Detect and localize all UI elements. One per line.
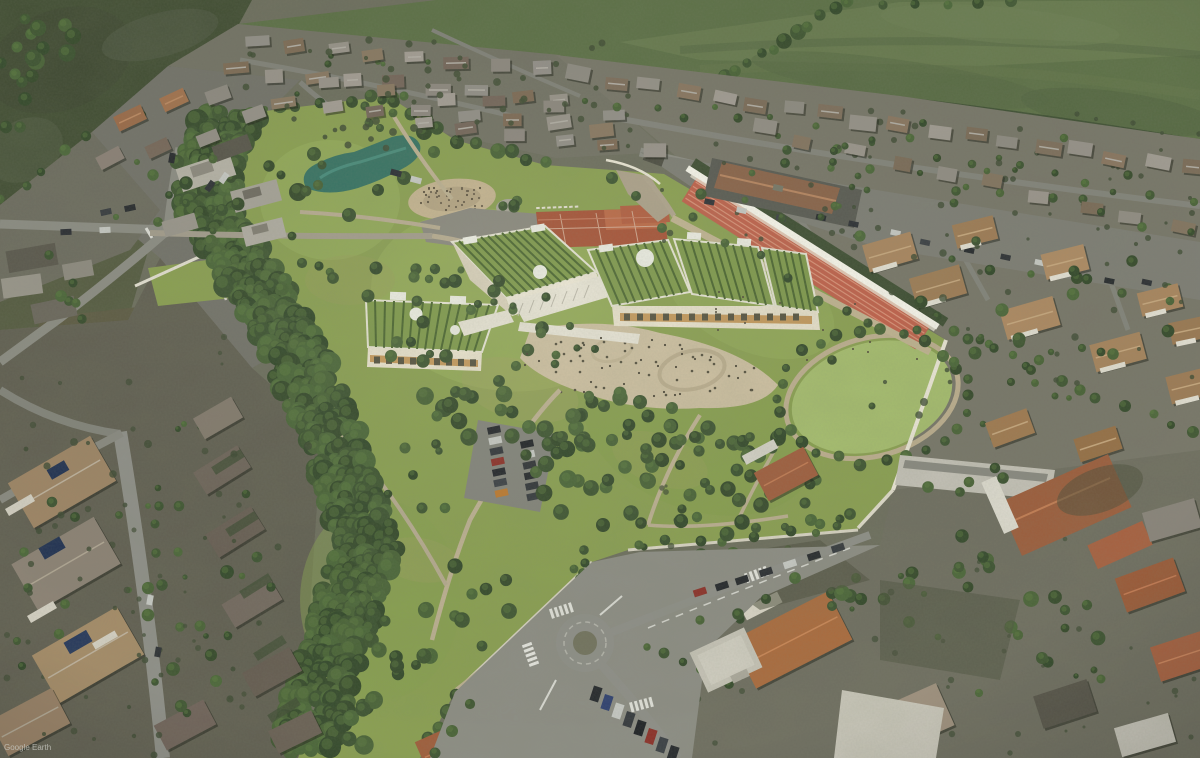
svg-text:Google Earth: Google Earth [4, 743, 51, 752]
